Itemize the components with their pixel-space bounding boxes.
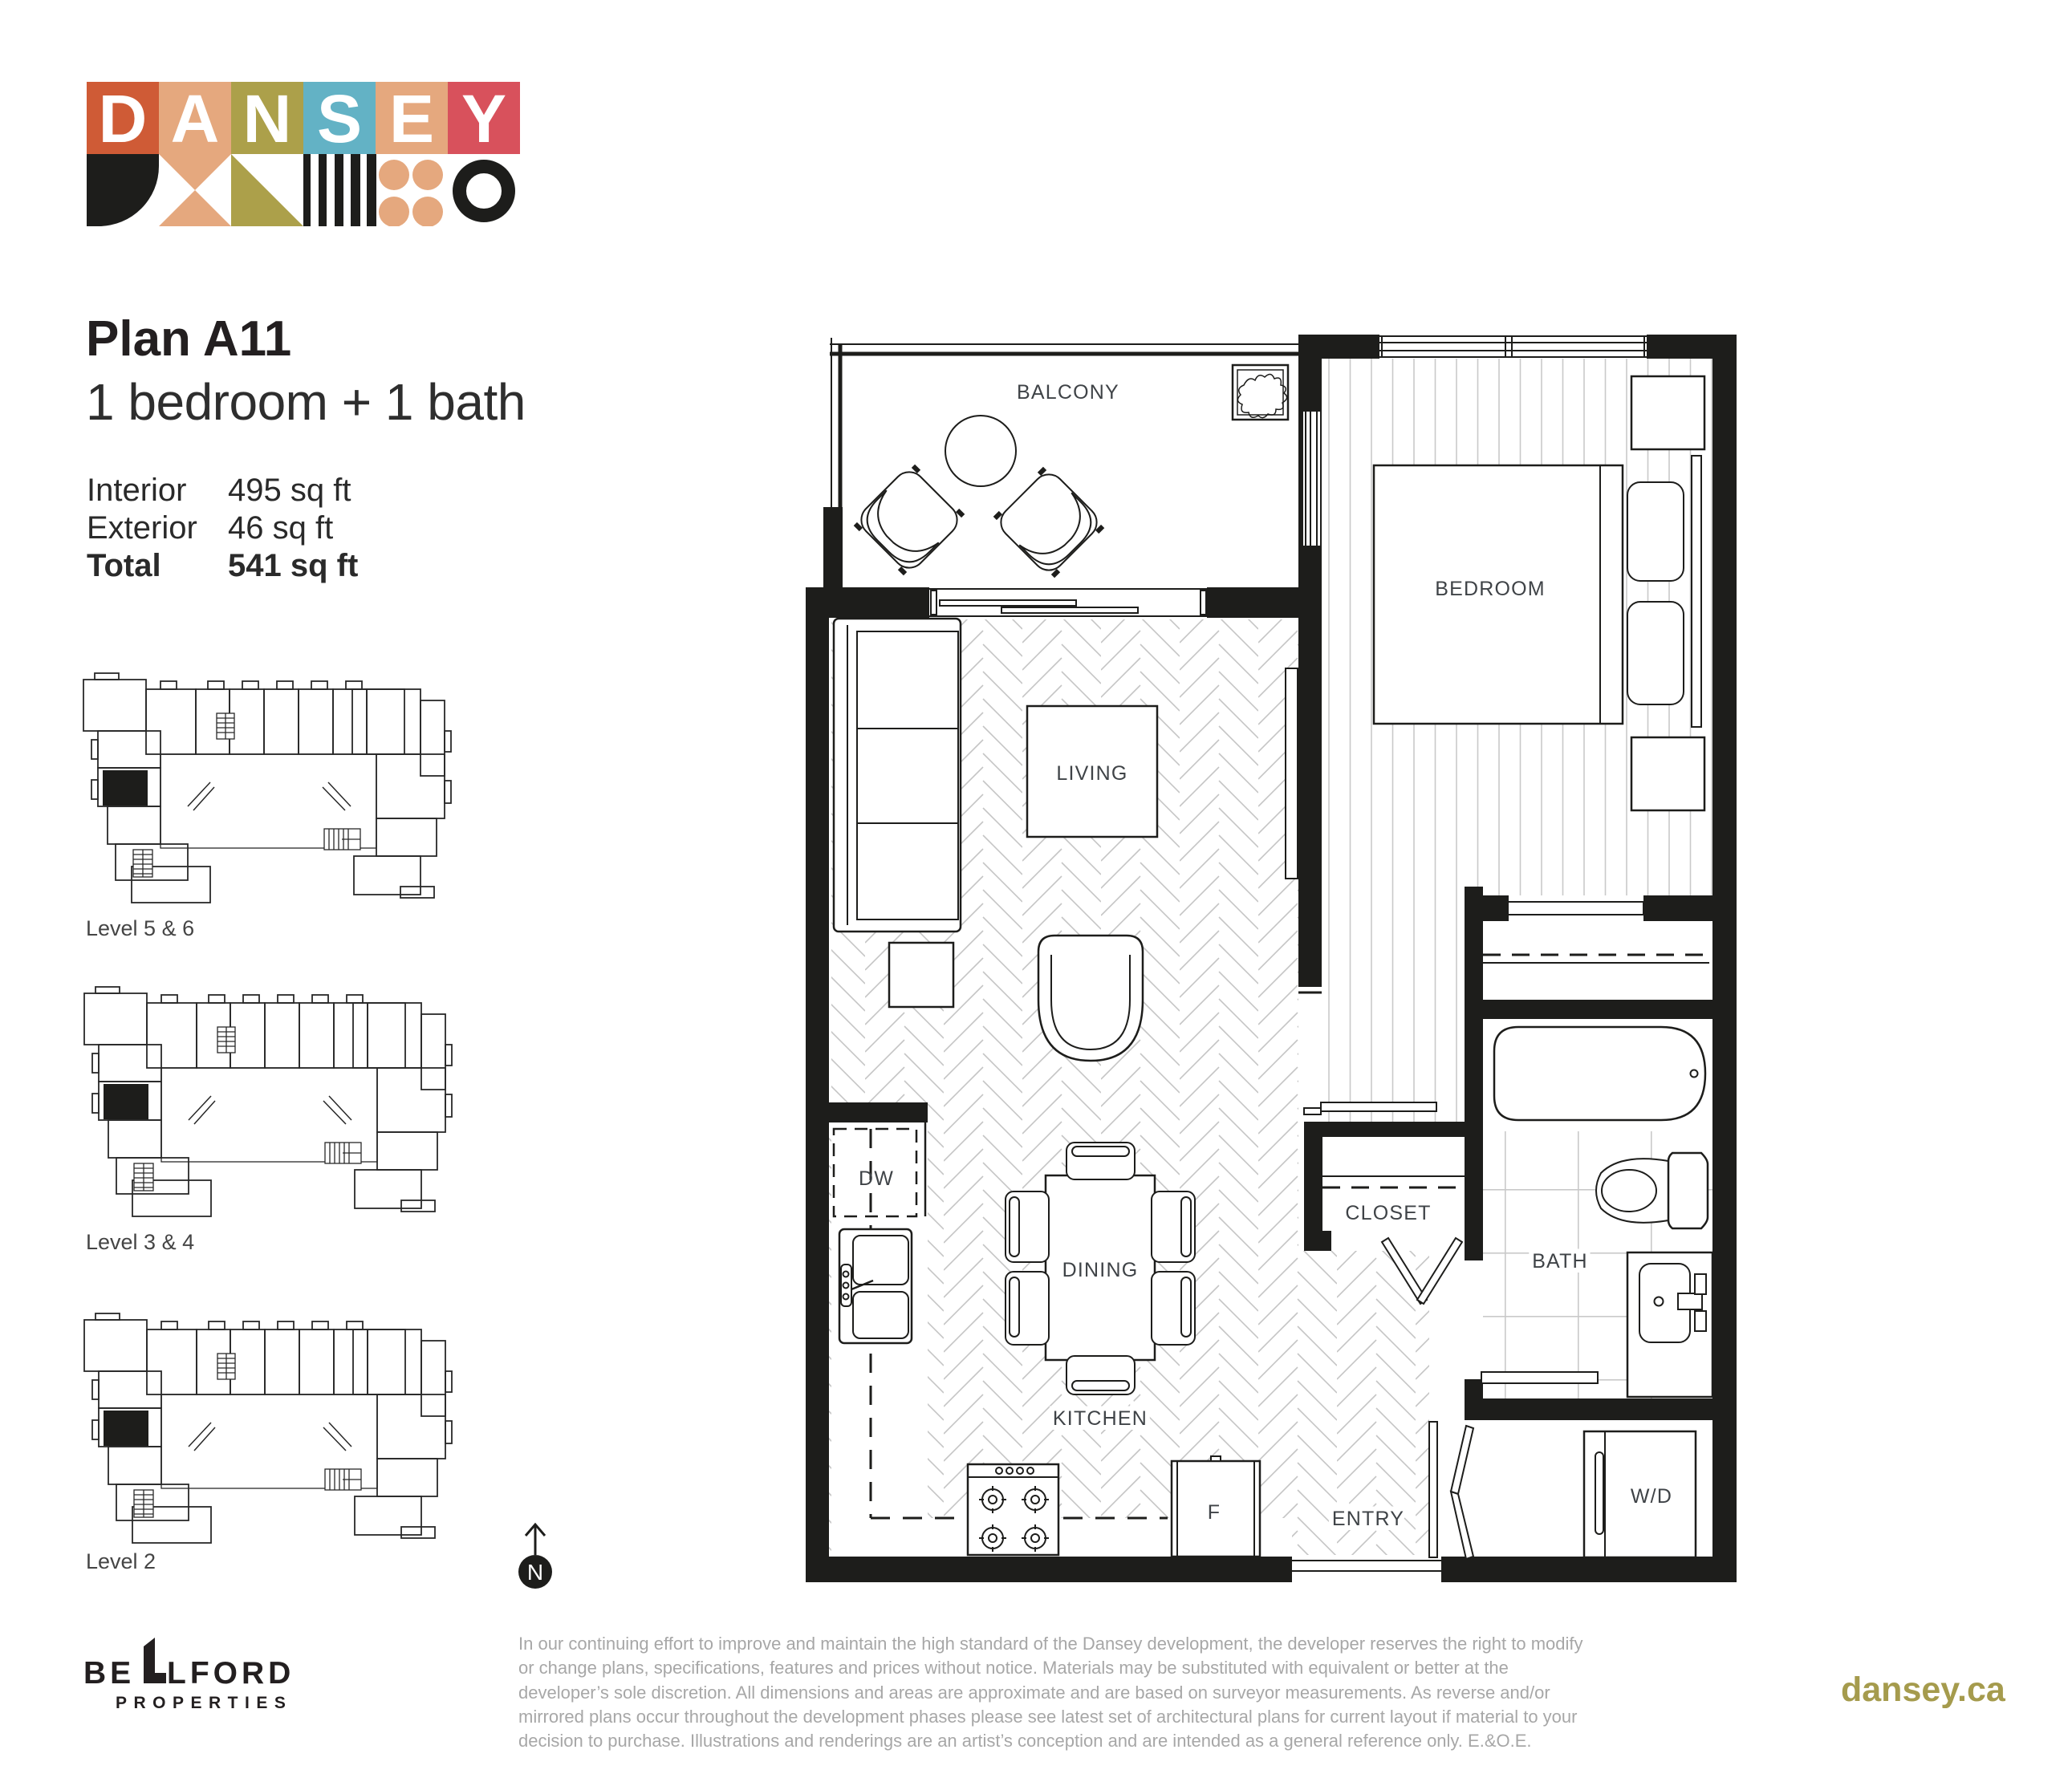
svg-text:W/D: W/D [1631, 1485, 1672, 1508]
svg-text:F: F [1208, 1501, 1221, 1524]
svg-text:BATH: BATH [1532, 1250, 1588, 1273]
svg-text:DINING: DINING [1062, 1259, 1139, 1281]
svg-text:LIVING: LIVING [1056, 762, 1127, 785]
svg-text:CLOSET: CLOSET [1345, 1202, 1431, 1224]
svg-text:BEDROOM: BEDROOM [1435, 578, 1546, 600]
svg-text:N: N [527, 1560, 543, 1585]
svg-text:BALCONY: BALCONY [1017, 381, 1119, 404]
svg-text:DW: DW [859, 1167, 894, 1190]
svg-text:KITCHEN: KITCHEN [1053, 1407, 1148, 1430]
svg-text:ENTRY: ENTRY [1332, 1508, 1404, 1530]
